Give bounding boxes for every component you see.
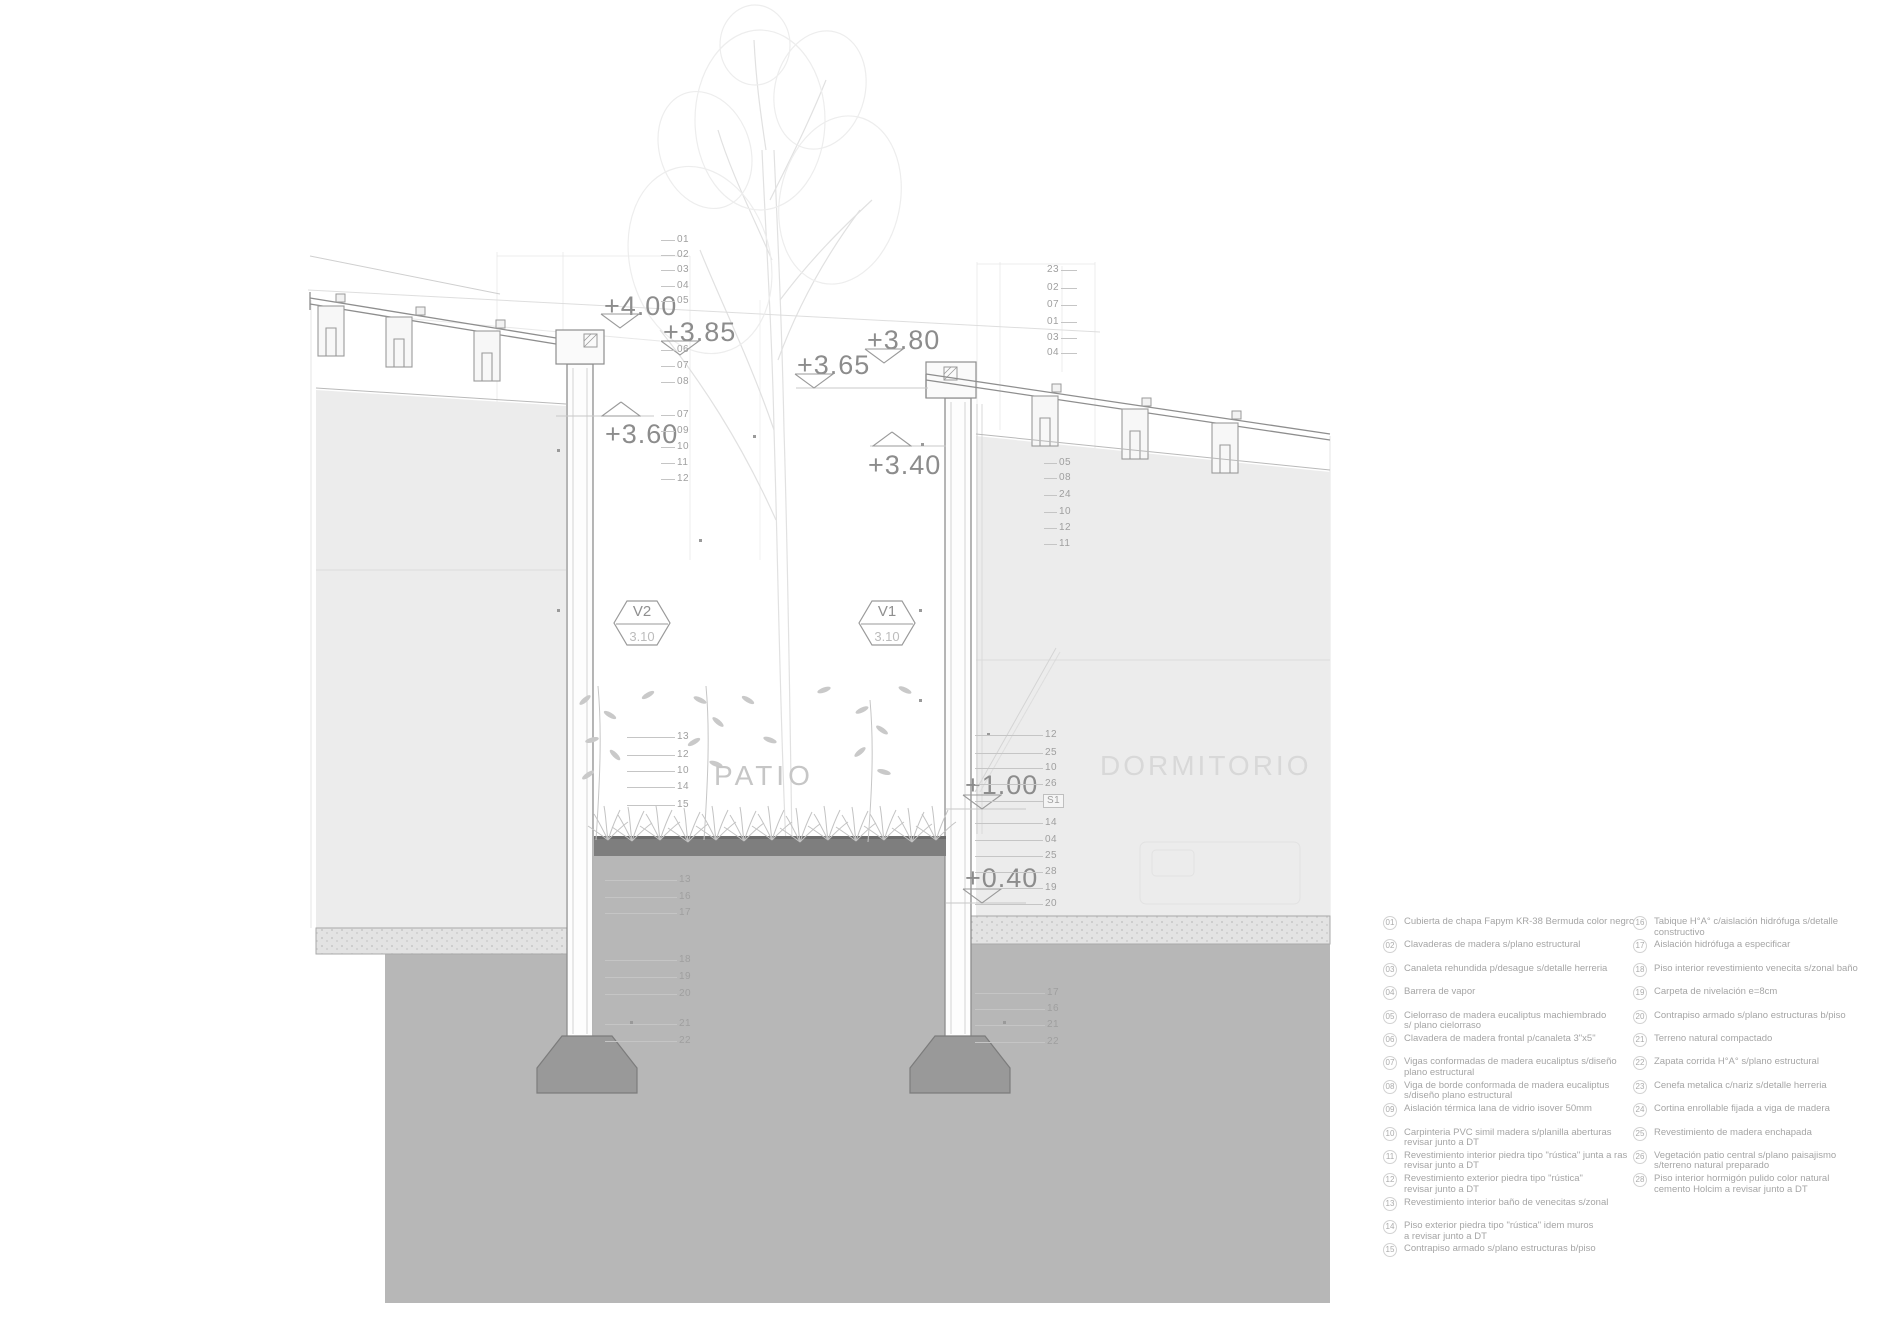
legend-item-text: Revestimiento interior piedra tipo "rúst… [1404,1150,1627,1172]
callout: 11 [1044,538,1072,550]
legend-item: 23Cenefa metalica c/nariz s/detalle herr… [1633,1080,1889,1103]
callout-leader-line [627,771,675,772]
callout-leader-line [661,286,675,287]
callout: 04 [975,834,1059,846]
callout: 19 [975,882,1059,894]
legend-item: 01Cubierta de chapa Fapym KR-38 Bermuda … [1383,916,1639,939]
legend-item-number: 19 [1633,986,1647,1000]
callout-number: 22 [677,1035,693,1047]
elevation-triangle-icon [600,313,640,334]
callout-leader-line [627,805,675,806]
callout: 07 [661,360,691,372]
callout-leader-line [661,447,675,448]
callout-number: 13 [675,731,691,743]
legend-item: 24Cortina enrollable fijada a viga de ma… [1633,1103,1889,1126]
window-tag-code: V1 [858,603,916,620]
callout: 09 [661,425,691,437]
legend-item-text: Terreno natural compactado [1654,1033,1772,1045]
callout-number: 10 [675,765,691,777]
window-tag: V13.10 [858,599,916,647]
legend-item-text: Barrera de vapor [1404,986,1475,998]
legend-item-number: 03 [1383,963,1397,977]
legend-item: 09Aislación térmica lana de vidrio isove… [1383,1103,1639,1126]
callout-number: 07 [1045,299,1061,311]
legend-item-text: Vigas conformadas de madera eucaliptus s… [1404,1056,1617,1078]
callout-number: 20 [1043,898,1059,910]
callout-number: 04 [1043,834,1059,846]
legend-item-number: 14 [1383,1220,1397,1234]
callout: 21 [975,1019,1061,1031]
legend-item-text: Viga de borde conformada de madera eucal… [1404,1080,1609,1102]
callout-leader-line [661,463,675,464]
callout-number: 04 [1045,347,1061,359]
callout-leader-line [661,301,675,302]
legend-item-number: 26 [1633,1150,1647,1164]
legend-item: 10Carpinteria PVC simil madera s/planill… [1383,1127,1639,1150]
callout-number: 10 [1043,762,1059,774]
callout-leader-line [605,994,677,995]
callout: 18 [605,954,693,966]
legend-item-text: Tabique H°A° c/aislación hidrófuga s/det… [1654,916,1889,938]
legend-item: 03Canaleta rehundida p/desague s/detalle… [1383,963,1639,986]
legend-item-number: 16 [1633,916,1647,930]
callout: 21 [605,1018,693,1030]
callout-number: 28 [1043,866,1059,878]
callout: 12 [975,729,1059,741]
legend-item-text: Cielorraso de madera eucaliptus machiemb… [1404,1010,1606,1032]
callout-number: 17 [677,907,693,919]
callout-leader-line [975,801,1043,802]
legend-item-text: Contrapiso armado s/plano estructuras b/… [1654,1010,1846,1022]
legend-item-number: 12 [1383,1173,1397,1187]
legend-item-number: 08 [1383,1080,1397,1094]
callout: 13 [627,731,691,743]
callout: 11 [661,457,690,469]
callout: 04 [1045,347,1077,359]
callout: 05 [1044,457,1073,469]
callout: 13 [605,874,693,886]
window-tag-value: 3.10 [613,629,671,644]
legend-item-number: 05 [1383,1010,1397,1024]
callout-leader-line [975,888,1043,889]
callout-number: 21 [677,1018,693,1030]
callout-leader-line [975,768,1043,769]
legend-item: 21Terreno natural compactado [1633,1033,1889,1056]
legend-item-text: Piso exterior piedra tipo "rústica" idem… [1404,1220,1593,1242]
callout-leader-line [1061,338,1077,339]
callout: 20 [975,898,1059,910]
callout-number: 26 [1043,778,1059,790]
callout-number: 12 [1057,522,1073,534]
callout-leader-line [661,350,675,351]
callout: 28 [975,866,1059,878]
legend-item-number: 02 [1383,939,1397,953]
callout: 16 [605,891,693,903]
legend-item: 17Aislación hidrófuga a especificar [1633,939,1889,962]
legend-item-text: Revestimiento de madera enchapada [1654,1127,1812,1139]
callout-leader-line [975,993,1045,994]
callout-leader-line [605,913,677,914]
callout-number: 09 [675,425,691,437]
callout-number: 21 [1045,1019,1061,1031]
callout-leader-line [605,1041,677,1042]
callout-leader-line [975,1009,1045,1010]
callout: 03 [661,264,691,276]
legend-item-text: Contrapiso armado s/plano estructuras b/… [1404,1243,1596,1255]
callout: 10 [661,441,691,453]
legend-item-number: 13 [1383,1197,1397,1211]
callout-number: 07 [675,409,691,421]
callout-number: 08 [675,376,691,388]
callout-number: 12 [675,473,691,485]
legend-item: 11Revestimiento interior piedra tipo "rú… [1383,1150,1639,1173]
callout-leader-line [975,872,1043,873]
callout: 05 [661,295,691,307]
callout-leader-line [975,1025,1045,1026]
callout-number: 08 [1057,472,1073,484]
callout-number: 01 [1045,316,1061,328]
legend-item-text: Aislación hidrófuga a especificar [1654,939,1790,951]
legend-item: 02Clavaderas de madera s/plano estructur… [1383,939,1639,962]
callout: S1 [975,795,1064,807]
legend-item: 04Barrera de vapor [1383,986,1639,1009]
callout: 10 [1044,506,1073,518]
legend-item-number: 11 [1383,1150,1397,1164]
callout: 01 [661,234,691,246]
callout-number: 02 [1045,282,1061,294]
legend-column-2: 16Tabique H°A° c/aislación hidrófuga s/d… [1633,916,1889,1197]
callout-leader-line [975,823,1043,824]
callout-number: 05 [675,295,691,307]
callout-leader-line [605,1024,677,1025]
legend-item-number: 15 [1383,1243,1397,1257]
callout-leader-line [975,1042,1045,1043]
legend-item-text: Clavadera de madera frontal p/canaleta 3… [1404,1033,1596,1045]
callout-leader-line [1044,495,1057,496]
legend-item: 08Viga de borde conformada de madera euc… [1383,1080,1639,1103]
callout: 06 [661,344,691,356]
legend-item-number: 09 [1383,1103,1397,1117]
callout-leader-line [627,755,675,756]
legend-item: 19Carpeta de nivelación e=8cm [1633,986,1889,1009]
legend-item-number: 20 [1633,1010,1647,1024]
callout: 12 [1044,522,1073,534]
callout-leader-line [1044,512,1057,513]
callout-leader-line [661,431,675,432]
callout: 14 [975,817,1059,829]
elevation-marker: +3.40 [868,450,941,481]
callout-number: 07 [675,360,691,372]
callout: 24 [1044,489,1073,501]
left-roof [310,256,556,381]
callout-number: 10 [675,441,691,453]
callout-number: 12 [1043,729,1059,741]
legend-item: 15Contrapiso armado s/plano estructuras … [1383,1243,1639,1266]
callout-leader-line [975,753,1043,754]
legend-item-number: 17 [1633,939,1647,953]
callout: 10 [975,762,1059,774]
callout-number: 02 [675,249,691,261]
legend-item: 14Piso exterior piedra tipo "rústica" id… [1383,1220,1639,1243]
callout: 16 [975,1003,1061,1015]
callout-number: 14 [675,781,691,793]
callout-number: 03 [675,264,691,276]
room-label-patio: PATIO [714,760,814,792]
legend-item: 12Revestimiento exterior piedra tipo "rú… [1383,1173,1639,1196]
callout-leader-line [661,240,675,241]
callout-leader-line [661,415,675,416]
legend-item-number: 24 [1633,1103,1647,1117]
callout-number: 13 [677,874,693,886]
legend-item-number: 07 [1383,1056,1397,1070]
room-label-dormitorio: DORMITORIO [1100,750,1311,782]
callout-leader-line [605,977,677,978]
callout: 04 [661,280,691,292]
callout-number: 15 [675,799,691,811]
callout-leader-line [627,787,675,788]
legend-item-text: Zapata corrida H°A° s/plano estructural [1654,1056,1819,1068]
callout-number: 24 [1057,489,1073,501]
callout-leader-line [975,856,1043,857]
callout: 02 [661,249,691,261]
callout-number: 16 [677,891,693,903]
callout-number: 11 [1057,538,1072,550]
callout-leader-line [1044,478,1057,479]
callout: 12 [627,749,691,761]
callout-number: 19 [1043,882,1059,894]
legend-item: 13Revestimiento interior baño de venecit… [1383,1197,1639,1220]
legend-item-text: Carpinteria PVC simil madera s/planilla … [1404,1127,1612,1149]
callout-number: 19 [677,971,693,983]
callout-leader-line [605,960,677,961]
callout-leader-line [661,382,675,383]
callout-leader-line [1061,270,1077,271]
callout-leader-line [975,904,1043,905]
callout-number: 25 [1043,747,1059,759]
callout-leader-line [605,897,677,898]
callout: 08 [661,376,691,388]
callout-leader-line [605,880,677,881]
legend-item-number: 04 [1383,986,1397,1000]
callout-leader-line [1044,544,1057,545]
legend-item: 18Piso interior revestimiento venecita s… [1633,963,1889,986]
callout-number: 16 [1045,1003,1061,1015]
callout-leader-line [1061,305,1077,306]
window-tag-value: 3.10 [858,629,916,644]
callout-number: 10 [1057,506,1073,518]
legend-item-text: Carpeta de nivelación e=8cm [1654,986,1777,998]
callout-leader-line [975,735,1043,736]
legend-item-number: 28 [1633,1173,1647,1187]
callout-number: 04 [675,280,691,292]
callout-number: 25 [1043,850,1059,862]
legend-item-text: Canaleta rehundida p/desague s/detalle h… [1404,963,1607,975]
callout: 25 [975,747,1059,759]
legend-item-text: Vegetación patio central s/plano paisaji… [1654,1150,1836,1172]
callout-leader-line [1044,528,1057,529]
callout: 15 [627,799,691,811]
callout: 25 [975,850,1059,862]
callout-leader-line [661,479,675,480]
callout: 10 [627,765,691,777]
callout-leader-line [661,366,675,367]
callout: 19 [605,971,693,983]
callout-leader-line [1061,353,1077,354]
legend-item-number: 01 [1383,916,1397,930]
legend-item: 05Cielorraso de madera eucaliptus machie… [1383,1010,1639,1033]
legend-item-number: 23 [1633,1080,1647,1094]
callout: 17 [975,987,1061,999]
callout: 17 [605,907,693,919]
callout-number: 14 [1043,817,1059,829]
legend-item-text: Revestimiento interior baño de venecitas… [1404,1197,1608,1209]
callout: 20 [605,988,693,1000]
legend-item: 25Revestimiento de madera enchapada [1633,1127,1889,1150]
callout-number: 17 [1045,987,1061,999]
callout-number: 23 [1045,264,1061,276]
callout-number: 11 [675,457,690,469]
callout-number: 22 [1045,1036,1061,1048]
callout-number: 20 [677,988,693,1000]
callout-number: 03 [1045,332,1061,344]
callout-number: 18 [677,954,693,966]
callout-leader-line [1044,463,1057,464]
legend-item-number: 06 [1383,1033,1397,1047]
callout-leader-line [975,840,1043,841]
legend-item-number: 25 [1633,1127,1647,1141]
legend-item-text: Aislación térmica lana de vidrio isover … [1404,1103,1592,1115]
drawing-stage: PATIO DORMITORIO +4.00+3.85+3.80+3.65+3.… [0,0,1900,1344]
callout: 01 [1045,316,1077,328]
callout: 22 [605,1035,693,1047]
window-tag-code: V2 [613,603,671,620]
legend-item: 20Contrapiso armado s/plano estructuras … [1633,1010,1889,1033]
callout-leader-line [1061,322,1077,323]
callout-leader-line [975,784,1043,785]
callout-leader-line [1061,288,1077,289]
legend-item-number: 22 [1633,1056,1647,1070]
elevation-triangle-icon [794,373,834,394]
callout-number: 06 [675,344,691,356]
legend-item-number: 21 [1633,1033,1647,1047]
callout: 23 [1045,264,1077,276]
callout: 26 [975,778,1059,790]
callout: 07 [1045,299,1077,311]
callout: 14 [627,781,691,793]
callout-leader-line [661,255,675,256]
architectural-section-sheet: { "colors": { "background": "#ffffff", "… [0,0,1900,1344]
legend-item-text: Cortina enrollable fijada a viga de made… [1654,1103,1830,1115]
legend-item-number: 18 [1633,963,1647,977]
legend-item-text: Piso interior revestimiento venecita s/z… [1654,963,1858,975]
callout-number: 01 [675,234,691,246]
callout-number: 05 [1057,457,1073,469]
legend-item-number: 10 [1383,1127,1397,1141]
callout: 12 [661,473,691,485]
legend-item-text: Clavaderas de madera s/plano estructural [1404,939,1580,951]
legend-item: 16Tabique H°A° c/aislación hidrófuga s/d… [1633,916,1889,939]
callout-leader-line [661,270,675,271]
legend-item-text: Cubierta de chapa Fapym KR-38 Bermuda co… [1404,916,1634,928]
elevation-triangle-icon [601,401,641,422]
legend-item-text: Cenefa metalica c/nariz s/detalle herrer… [1654,1080,1827,1092]
callout: 02 [1045,282,1077,294]
legend-item: 28Piso interior hormigón pulido color na… [1633,1173,1889,1196]
callout: 22 [975,1036,1061,1048]
callout-leader-line [627,737,675,738]
legend-item: 07Vigas conformadas de madera eucaliptus… [1383,1056,1639,1079]
callout-number: 12 [675,749,691,761]
callout: 08 [1044,472,1073,484]
legend-item: 26Vegetación patio central s/plano paisa… [1633,1150,1889,1173]
legend-item-text: Revestimiento exterior piedra tipo "rúst… [1404,1173,1583,1195]
legend-item-text: Piso interior hormigón pulido color natu… [1654,1173,1829,1195]
legend-item: 22Zapata corrida H°A° s/plano estructura… [1633,1056,1889,1079]
callout: 07 [661,409,691,421]
legend-item: 06Clavadera de madera frontal p/canaleta… [1383,1033,1639,1056]
window-tag: V23.10 [613,599,671,647]
elevation-triangle-icon [872,431,912,452]
callout-number: S1 [1043,794,1064,808]
legend-column-1: 01Cubierta de chapa Fapym KR-38 Bermuda … [1383,916,1639,1267]
callout: 03 [1045,332,1077,344]
